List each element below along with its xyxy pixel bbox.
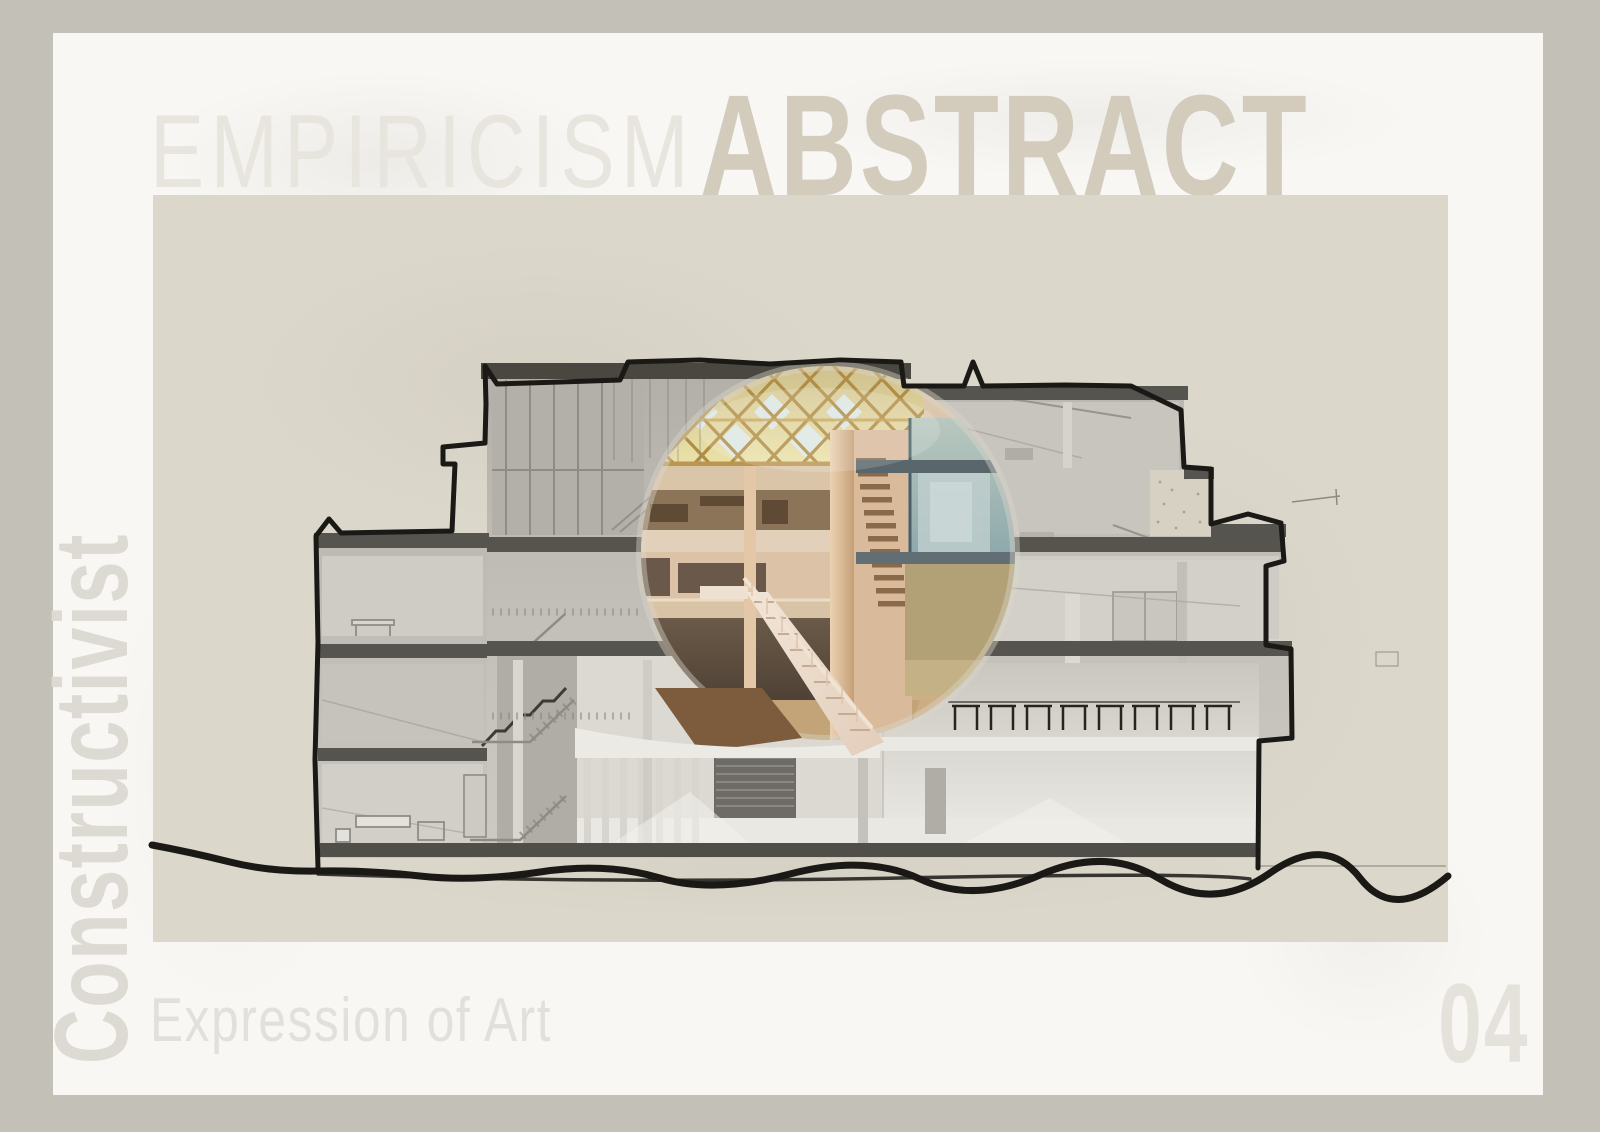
presentation-board: EMPIRICISM ABSTRACT Constructivist Expre… (0, 0, 1600, 1132)
building-section-artwork (0, 0, 1600, 1132)
